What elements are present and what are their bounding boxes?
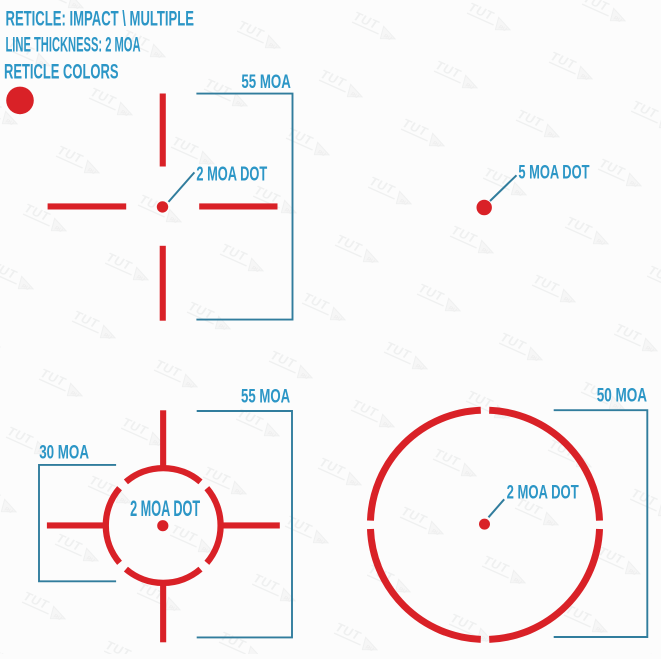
svg-text:50 MOA: 50 MOA (597, 386, 647, 407)
svg-text:2 MOA DOT: 2 MOA DOT (130, 496, 200, 521)
svg-text:2 MOA DOT: 2 MOA DOT (196, 164, 267, 186)
svg-text:30 MOA: 30 MOA (39, 442, 89, 464)
svg-text:55 MOA: 55 MOA (241, 72, 290, 93)
svg-text:5 MOA DOT: 5 MOA DOT (518, 161, 589, 183)
svg-text:RETICLE: IMPACT \ MULTIPLE: RETICLE: IMPACT \ MULTIPLE (6, 7, 195, 31)
svg-text:55 MOA: 55 MOA (241, 387, 290, 408)
svg-text:LINE THICKNESS: 2 MOA: LINE THICKNESS: 2 MOA (6, 32, 141, 56)
svg-text:RETICLE COLORS: RETICLE COLORS (4, 60, 119, 84)
svg-text:2 MOA DOT: 2 MOA DOT (507, 481, 579, 503)
